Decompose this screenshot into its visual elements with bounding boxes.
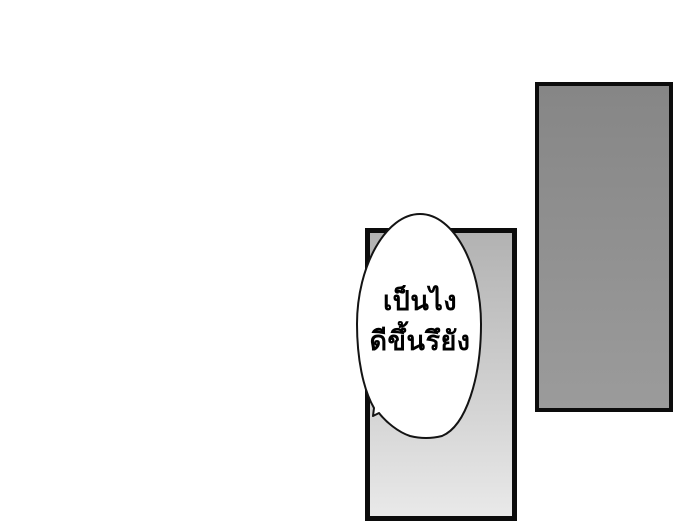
- speech-bubble-text: เป็นไง ดีขึ้นรึยัง: [352, 282, 488, 362]
- panel-right: [535, 82, 673, 412]
- speech-line-1: เป็นไง: [352, 282, 488, 322]
- speech-line-2: ดีขึ้นรึยัง: [352, 322, 488, 362]
- comic-page: เป็นไง ดีขึ้นรึยัง: [0, 0, 690, 528]
